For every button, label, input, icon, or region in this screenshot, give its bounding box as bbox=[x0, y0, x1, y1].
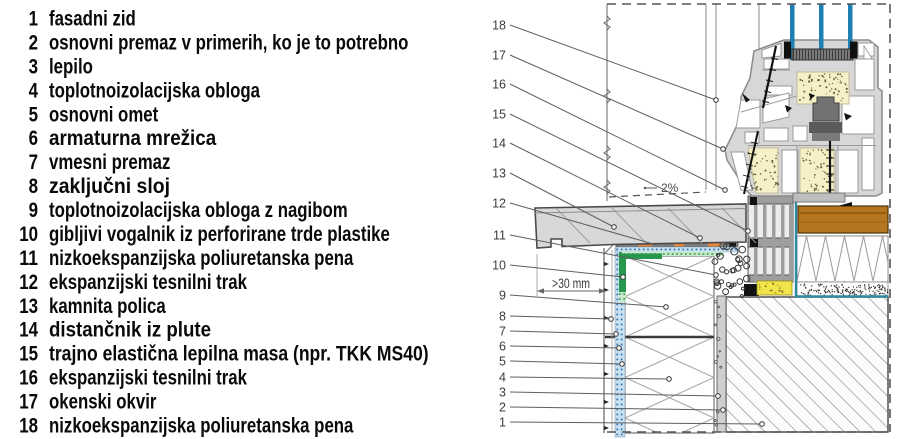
svg-text:osnovni omet: osnovni omet bbox=[49, 103, 158, 126]
svg-text:16: 16 bbox=[492, 78, 506, 92]
svg-text:9: 9 bbox=[29, 199, 38, 222]
svg-text:5: 5 bbox=[499, 355, 506, 369]
svg-text:3: 3 bbox=[29, 55, 38, 78]
svg-text:15: 15 bbox=[492, 108, 506, 122]
svg-text:8: 8 bbox=[29, 175, 39, 198]
svg-text:18: 18 bbox=[19, 415, 38, 438]
svg-text:7: 7 bbox=[499, 325, 506, 339]
svg-text:armaturna mrežica: armaturna mrežica bbox=[49, 127, 216, 150]
svg-text:>30 mm: >30 mm bbox=[552, 276, 590, 291]
svg-text:12: 12 bbox=[492, 197, 506, 211]
svg-text:osnovni premaz v primerih, ko: osnovni premaz v primerih, ko je to potr… bbox=[49, 31, 408, 54]
svg-text:vmesni premaz: vmesni premaz bbox=[49, 151, 170, 174]
svg-text:8: 8 bbox=[499, 310, 506, 324]
svg-text:13: 13 bbox=[492, 167, 506, 181]
svg-text:13: 13 bbox=[19, 295, 38, 318]
svg-text:4: 4 bbox=[499, 371, 506, 385]
svg-text:2: 2 bbox=[29, 31, 38, 54]
svg-text:11: 11 bbox=[19, 247, 38, 270]
svg-text:distančnik iz plute: distančnik iz plute bbox=[49, 319, 211, 342]
svg-text:toplotnoizolacijska obloga: toplotnoizolacijska obloga bbox=[49, 79, 260, 102]
svg-text:11: 11 bbox=[493, 229, 506, 243]
svg-text:16: 16 bbox=[19, 367, 38, 390]
svg-text:4: 4 bbox=[29, 79, 39, 102]
svg-text:trajno elastična lepilna masa: trajno elastična lepilna masa (npr. TKK … bbox=[49, 343, 429, 366]
svg-text:gibljivi vogalnik iz perforira: gibljivi vogalnik iz perforirane trde pl… bbox=[49, 223, 390, 246]
svg-text:17: 17 bbox=[19, 391, 38, 414]
svg-text:1: 1 bbox=[29, 8, 39, 31]
svg-text:17: 17 bbox=[492, 49, 506, 63]
svg-text:zaključni sloj: zaključni sloj bbox=[49, 175, 170, 198]
svg-text:ekspanzijski tesnilni trak: ekspanzijski tesnilni trak bbox=[49, 367, 247, 390]
svg-text:2: 2 bbox=[499, 401, 506, 415]
svg-text:12: 12 bbox=[19, 271, 38, 294]
svg-text:14: 14 bbox=[492, 137, 506, 151]
svg-text:1: 1 bbox=[499, 416, 506, 430]
svg-text:ekspanzijski tesnilni trak: ekspanzijski tesnilni trak bbox=[49, 271, 247, 294]
svg-text:okenski okvir: okenski okvir bbox=[49, 391, 156, 414]
svg-text:9: 9 bbox=[499, 289, 506, 303]
svg-text:18: 18 bbox=[492, 19, 506, 33]
svg-text:6: 6 bbox=[499, 340, 506, 354]
svg-text:10: 10 bbox=[492, 259, 506, 273]
svg-text:kamnita polica: kamnita polica bbox=[49, 295, 166, 318]
svg-text:5: 5 bbox=[29, 103, 39, 126]
svg-text:15: 15 bbox=[19, 343, 38, 366]
svg-text:10: 10 bbox=[19, 223, 38, 246]
svg-text:6: 6 bbox=[29, 127, 38, 150]
svg-text:14: 14 bbox=[19, 319, 38, 342]
svg-text:nizkoekspanzijska poliuretansk: nizkoekspanzijska poliuretanska pena bbox=[49, 415, 354, 438]
svg-text:fasadni zid: fasadni zid bbox=[49, 8, 136, 31]
svg-text:3: 3 bbox=[499, 386, 506, 400]
svg-text:toplotnoizolacijska obloga z n: toplotnoizolacijska obloga z nagibom bbox=[49, 199, 348, 222]
svg-text:nizkoekspanzijska poliuretansk: nizkoekspanzijska poliuretanska pena bbox=[49, 247, 354, 270]
svg-text:lepilo: lepilo bbox=[49, 55, 93, 78]
svg-text:7: 7 bbox=[29, 151, 38, 174]
